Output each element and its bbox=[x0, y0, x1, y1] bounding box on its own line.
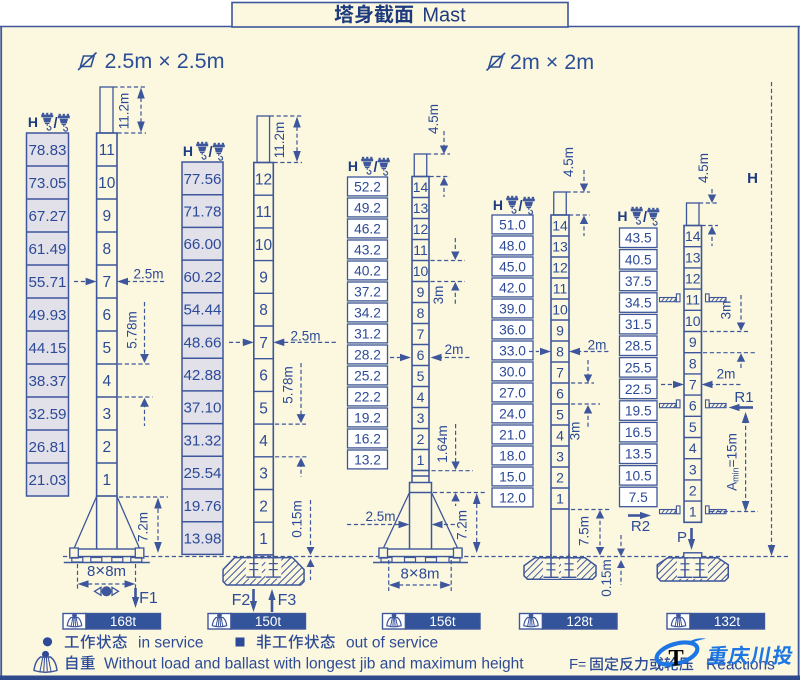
svg-text:1: 1 bbox=[102, 472, 111, 489]
svg-text:5.78m: 5.78m bbox=[125, 311, 140, 349]
svg-text:10: 10 bbox=[413, 263, 429, 279]
svg-text:13: 13 bbox=[552, 239, 568, 255]
svg-text:32.59: 32.59 bbox=[28, 406, 66, 423]
svg-text:11: 11 bbox=[685, 292, 700, 308]
svg-text:43.5: 43.5 bbox=[625, 231, 652, 246]
svg-text:7: 7 bbox=[556, 365, 564, 381]
svg-text:1: 1 bbox=[259, 531, 268, 548]
svg-text:1: 1 bbox=[417, 452, 425, 468]
svg-text:26.81: 26.81 bbox=[28, 439, 66, 456]
svg-text:4: 4 bbox=[689, 440, 697, 456]
svg-text:3: 3 bbox=[417, 410, 425, 426]
svg-text:Without load and ballast with: Without load and ballast with longest ji… bbox=[104, 656, 524, 673]
svg-text:12: 12 bbox=[255, 171, 272, 188]
svg-text:6: 6 bbox=[556, 386, 564, 402]
svg-text:37.10: 37.10 bbox=[183, 400, 221, 417]
svg-text:0.15m: 0.15m bbox=[290, 500, 305, 538]
svg-text:49.2: 49.2 bbox=[354, 200, 381, 215]
svg-text:19.2: 19.2 bbox=[354, 410, 381, 425]
svg-text:31.2: 31.2 bbox=[354, 326, 381, 341]
svg-text:78.83: 78.83 bbox=[28, 142, 66, 159]
svg-text:61.49: 61.49 bbox=[28, 241, 66, 258]
svg-text:71.78: 71.78 bbox=[183, 204, 221, 221]
svg-text:31.5: 31.5 bbox=[625, 317, 652, 332]
svg-text:38.37: 38.37 bbox=[28, 373, 66, 390]
svg-text:22.2: 22.2 bbox=[354, 389, 381, 404]
svg-text:12: 12 bbox=[413, 221, 429, 237]
svg-text:2: 2 bbox=[259, 498, 268, 515]
svg-text:5: 5 bbox=[417, 368, 425, 384]
svg-text:52.2: 52.2 bbox=[354, 179, 381, 194]
svg-text:7.2m: 7.2m bbox=[455, 510, 470, 540]
svg-text:8×8m: 8×8m bbox=[87, 561, 126, 580]
svg-text:3m: 3m bbox=[719, 301, 734, 320]
svg-text:6: 6 bbox=[259, 368, 268, 385]
svg-text:33.0: 33.0 bbox=[499, 343, 526, 358]
svg-text:T: T bbox=[668, 646, 683, 671]
svg-text:8: 8 bbox=[259, 302, 268, 319]
svg-text:4: 4 bbox=[556, 428, 564, 444]
svg-text:4: 4 bbox=[102, 373, 111, 390]
svg-text:R1: R1 bbox=[734, 389, 753, 406]
svg-text:67.27: 67.27 bbox=[28, 208, 66, 225]
svg-text:45.0: 45.0 bbox=[499, 259, 526, 274]
svg-text:11.2m: 11.2m bbox=[117, 93, 132, 130]
svg-text:48.66: 48.66 bbox=[183, 334, 221, 351]
svg-text:3: 3 bbox=[102, 406, 111, 423]
svg-text:5: 5 bbox=[259, 400, 268, 417]
svg-text:24.0: 24.0 bbox=[499, 406, 526, 421]
svg-text:54.44: 54.44 bbox=[183, 302, 221, 319]
svg-text:H: H bbox=[493, 197, 503, 213]
svg-text:5.78m: 5.78m bbox=[281, 366, 296, 404]
svg-text:H: H bbox=[348, 158, 358, 174]
svg-text:14: 14 bbox=[552, 218, 568, 234]
svg-text:2: 2 bbox=[417, 431, 425, 447]
svg-text:9: 9 bbox=[689, 334, 697, 350]
svg-text:77.56: 77.56 bbox=[183, 171, 221, 188]
svg-text:11.2m: 11.2m bbox=[272, 122, 287, 159]
svg-text:27.0: 27.0 bbox=[499, 385, 526, 400]
svg-text:21.0: 21.0 bbox=[499, 427, 526, 442]
svg-text:6: 6 bbox=[417, 347, 425, 363]
svg-text:7: 7 bbox=[689, 377, 697, 393]
svg-text:34.2: 34.2 bbox=[354, 305, 381, 320]
svg-text:H: H bbox=[183, 143, 193, 159]
svg-text:8: 8 bbox=[689, 355, 697, 371]
svg-text:132t: 132t bbox=[714, 614, 741, 629]
svg-text:12.0: 12.0 bbox=[499, 490, 526, 505]
svg-text:11: 11 bbox=[256, 204, 272, 221]
svg-text:/: / bbox=[53, 116, 57, 132]
svg-text:21.03: 21.03 bbox=[28, 472, 66, 489]
svg-text:8: 8 bbox=[102, 241, 111, 258]
svg-text:7: 7 bbox=[102, 274, 111, 291]
svg-text:11: 11 bbox=[413, 242, 428, 258]
svg-text:=: = bbox=[578, 656, 586, 672]
svg-text:2m: 2m bbox=[445, 342, 464, 357]
svg-text:2.5m: 2.5m bbox=[290, 328, 320, 343]
svg-text:P: P bbox=[677, 529, 687, 546]
svg-text:3: 3 bbox=[689, 461, 697, 477]
svg-text:46.2: 46.2 bbox=[354, 221, 381, 236]
svg-text:H: H bbox=[28, 114, 38, 130]
svg-text:out of service: out of service bbox=[346, 635, 438, 652]
svg-text:8: 8 bbox=[556, 344, 564, 360]
svg-text:44.15: 44.15 bbox=[28, 340, 66, 357]
svg-text:34.5: 34.5 bbox=[625, 296, 652, 311]
svg-text:9: 9 bbox=[259, 270, 268, 287]
svg-text:51.0: 51.0 bbox=[499, 217, 526, 232]
svg-text:40.2: 40.2 bbox=[354, 263, 381, 278]
svg-text:9: 9 bbox=[556, 323, 564, 339]
svg-text:28.2: 28.2 bbox=[354, 347, 381, 362]
svg-text:10: 10 bbox=[685, 313, 701, 329]
svg-text:6: 6 bbox=[689, 398, 697, 414]
svg-text:43.2: 43.2 bbox=[354, 242, 381, 257]
svg-text:F2: F2 bbox=[232, 592, 251, 609]
svg-text:12: 12 bbox=[685, 271, 701, 287]
svg-text:3: 3 bbox=[556, 449, 564, 465]
svg-text:55.71: 55.71 bbox=[28, 274, 66, 291]
svg-text:Amin=15m: Amin=15m bbox=[725, 433, 741, 491]
svg-text:1: 1 bbox=[689, 504, 697, 520]
svg-text:/: / bbox=[518, 199, 522, 215]
svg-text:/: / bbox=[208, 145, 212, 161]
svg-text:168t: 168t bbox=[110, 614, 137, 629]
svg-text:4.5m: 4.5m bbox=[696, 153, 711, 183]
svg-text:3m: 3m bbox=[431, 286, 446, 305]
svg-text:12: 12 bbox=[552, 260, 568, 276]
svg-text:37.2: 37.2 bbox=[354, 284, 381, 299]
svg-text:0.15m: 0.15m bbox=[599, 559, 614, 597]
svg-text:2.5m × 2.5m: 2.5m × 2.5m bbox=[104, 49, 224, 73]
svg-text:22.5: 22.5 bbox=[625, 382, 652, 397]
svg-text:156t: 156t bbox=[429, 614, 456, 629]
svg-text:Mast: Mast bbox=[422, 5, 466, 27]
svg-text:2.5m: 2.5m bbox=[133, 267, 163, 282]
svg-text:128t: 128t bbox=[566, 614, 593, 629]
svg-text:13: 13 bbox=[685, 249, 701, 265]
svg-text:2: 2 bbox=[689, 483, 697, 499]
svg-text:25.5: 25.5 bbox=[625, 360, 652, 375]
svg-text:7.5: 7.5 bbox=[629, 490, 649, 505]
svg-text:H: H bbox=[617, 208, 627, 224]
svg-text:/: / bbox=[643, 210, 647, 226]
svg-text:39.0: 39.0 bbox=[499, 301, 526, 316]
svg-text:30.0: 30.0 bbox=[499, 364, 526, 379]
svg-text:15.0: 15.0 bbox=[499, 469, 526, 484]
svg-text:7: 7 bbox=[259, 335, 268, 352]
svg-text:13: 13 bbox=[413, 200, 429, 216]
svg-text:42.88: 42.88 bbox=[183, 367, 221, 384]
svg-text:14: 14 bbox=[413, 179, 429, 195]
svg-text:4.5m: 4.5m bbox=[426, 104, 441, 134]
svg-text:8: 8 bbox=[417, 305, 425, 321]
svg-text:/: / bbox=[373, 160, 377, 176]
svg-text:11: 11 bbox=[99, 142, 115, 159]
svg-text:10: 10 bbox=[552, 302, 568, 318]
svg-text:in service: in service bbox=[138, 635, 203, 652]
svg-text:H: H bbox=[747, 170, 758, 187]
svg-text:60.22: 60.22 bbox=[183, 269, 221, 286]
svg-text:8×8m: 8×8m bbox=[400, 564, 439, 583]
svg-text:16.2: 16.2 bbox=[354, 431, 381, 446]
svg-text:4: 4 bbox=[417, 389, 425, 405]
svg-text:40.5: 40.5 bbox=[625, 252, 652, 267]
svg-text:11: 11 bbox=[553, 281, 568, 297]
svg-text:73.05: 73.05 bbox=[28, 175, 66, 192]
svg-text:2.5m: 2.5m bbox=[365, 509, 395, 524]
svg-text:4: 4 bbox=[259, 433, 268, 450]
svg-text:2m × 2m: 2m × 2m bbox=[510, 50, 594, 74]
svg-text:9: 9 bbox=[417, 284, 425, 300]
svg-text:6: 6 bbox=[102, 307, 111, 324]
svg-text:F: F bbox=[569, 656, 578, 673]
svg-text:28.5: 28.5 bbox=[625, 339, 652, 354]
svg-text:36.0: 36.0 bbox=[499, 322, 526, 337]
svg-text:31.32: 31.32 bbox=[183, 432, 221, 449]
svg-text:19.5: 19.5 bbox=[625, 404, 652, 419]
svg-text:19.76: 19.76 bbox=[183, 498, 221, 515]
svg-text:9: 9 bbox=[102, 208, 111, 225]
svg-text:R2: R2 bbox=[631, 518, 650, 535]
svg-text:F1: F1 bbox=[139, 590, 158, 607]
svg-text:16.5: 16.5 bbox=[625, 425, 652, 440]
svg-text:2m: 2m bbox=[717, 367, 736, 382]
svg-text:2: 2 bbox=[102, 439, 111, 456]
svg-text:10: 10 bbox=[255, 237, 273, 254]
svg-text:5: 5 bbox=[556, 407, 564, 423]
svg-text:25.54: 25.54 bbox=[183, 465, 221, 482]
svg-text:1.64m: 1.64m bbox=[435, 425, 450, 463]
svg-text:3: 3 bbox=[259, 466, 268, 483]
svg-text:7.2m: 7.2m bbox=[136, 512, 151, 542]
svg-text:2m: 2m bbox=[588, 338, 607, 353]
svg-text:13.98: 13.98 bbox=[183, 531, 221, 548]
svg-text:66.00: 66.00 bbox=[183, 236, 221, 253]
svg-text:5: 5 bbox=[102, 340, 111, 357]
svg-text:18.0: 18.0 bbox=[499, 448, 526, 463]
svg-text:48.0: 48.0 bbox=[499, 238, 526, 253]
svg-text:1: 1 bbox=[556, 491, 564, 507]
svg-text:7: 7 bbox=[417, 326, 425, 342]
svg-text:42.0: 42.0 bbox=[499, 280, 526, 295]
svg-text:13.2: 13.2 bbox=[354, 452, 381, 467]
svg-text:5: 5 bbox=[689, 419, 697, 435]
svg-text:14: 14 bbox=[685, 228, 701, 244]
svg-text:10: 10 bbox=[98, 175, 116, 192]
svg-text:3m: 3m bbox=[568, 422, 583, 441]
svg-text:F3: F3 bbox=[278, 592, 297, 609]
svg-text:150t: 150t bbox=[255, 614, 282, 629]
svg-text:49.93: 49.93 bbox=[28, 307, 66, 324]
svg-text:13.5: 13.5 bbox=[625, 447, 652, 462]
svg-text:37.5: 37.5 bbox=[625, 274, 652, 289]
svg-text:7.5m: 7.5m bbox=[577, 516, 592, 546]
svg-text:25.2: 25.2 bbox=[354, 368, 381, 383]
svg-text:2: 2 bbox=[556, 470, 564, 486]
svg-text:10.5: 10.5 bbox=[625, 468, 652, 483]
svg-text:4.5m: 4.5m bbox=[561, 147, 576, 177]
